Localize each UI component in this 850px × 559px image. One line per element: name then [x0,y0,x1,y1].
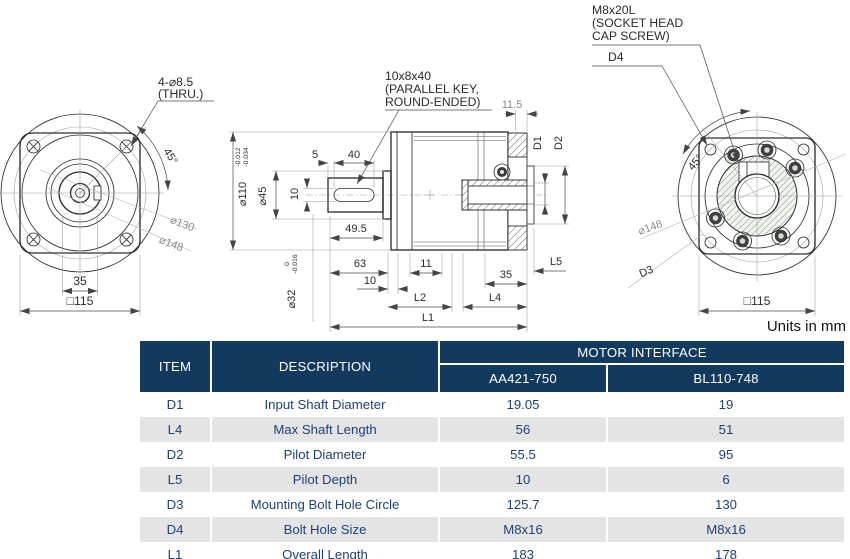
col-header-aa421-750: AA421-750 [438,365,606,392]
col-header-description: DESCRIPTION [210,341,438,392]
spec-table: ITEM DESCRIPTION MOTOR INTERFACE AA421-7… [140,341,844,559]
technical-drawing-page: ⌀130 ⌀148 45° 4-⌀8.5 (THRU.) 35 □115 [0,0,850,559]
rear-view: 45° ⌀148 D3 M8x20L (SOCKET HEAD CAP SCRE… [592,3,846,316]
cell-item: L1 [140,542,210,559]
section-dim-10: 10 [364,275,376,287]
section-input-sleeve [462,180,527,210]
section-pilot-boss [527,166,534,224]
cell-value-bl110: 19 [606,392,844,417]
section-dia45-label: ⌀45 [257,187,269,206]
table-row-l4: L4 Max Shaft Length 56 51 [140,417,844,442]
front-dia148-label: ⌀148 [157,234,185,254]
rear-screw-note-line2: (SOCKET HEAD [592,16,683,30]
cell-value-aa421: 10 [438,467,606,492]
cell-value-bl110: 130 [606,492,844,517]
section-dim-11-5: 11.5 [502,99,523,111]
cell-description: Pilot Depth [210,467,438,492]
section-dia110-label: ⌀110 [237,182,249,206]
cell-value-bl110: 51 [606,417,844,442]
section-dim-D1: D1 [532,136,544,150]
front-bolt-note-line2: (THRU.) [158,87,203,101]
col-header-bl110-748: BL110-748 [606,365,844,392]
cell-description: Pilot Diameter [210,442,438,467]
table-row-d4: D4 Bolt Hole Size M8x16 M8x16 [140,517,844,542]
cell-description: Input Shaft Diameter [210,392,438,417]
table-row-d1: D1 Input Shaft Diameter 19.05 19 [140,392,844,417]
section-view: 10x8x40 (PARALLEL KEY, ROUND-ENDED) 5 40… [229,69,569,332]
cell-value-bl110: 178 [606,542,844,559]
section-dim-key-width: 10 [289,188,301,200]
section-dia110-tol-lower: -0.034 [243,147,250,166]
section-dim-L1: L1 [422,312,434,324]
rear-dim-D4: D4 [608,50,624,64]
cell-description: Max Shaft Length [210,417,438,442]
rear-dim-D3: D3 [638,264,656,281]
rear-dim-square115: □115 [744,294,771,308]
table-row-d3: D3 Mounting Bolt Hole Circle 125.7 130 [140,492,844,517]
drawing-canvas: ⌀130 ⌀148 45° 4-⌀8.5 (THRU.) 35 □115 [0,0,850,340]
table-row-l1: L1 Overall Length 183 178 [140,542,844,559]
section-dim-L4: L4 [489,292,501,304]
front-angle-label: 45° [161,146,180,166]
cell-item: L5 [140,467,210,492]
front-dia130-label: ⌀130 [168,214,196,234]
col-header-item: ITEM [140,341,210,392]
section-dim-11: 11 [420,258,431,270]
section-key-note-line1: 10x8x40 [385,69,431,83]
front-dim-35: 35 [73,274,87,288]
rear-screw-note-line3: CAP SCREW) [592,29,670,43]
section-dim-L2: L2 [414,292,426,304]
cell-value-bl110: M8x16 [606,517,844,542]
cell-value-aa421: 19.05 [438,392,606,417]
section-key-note-line3: ROUND-ENDED) [385,95,480,109]
cell-value-aa421: 125.7 [438,492,606,517]
units-label: Units in mm [767,318,846,335]
cell-value-aa421: 56 [438,417,606,442]
cell-item: D1 [140,392,210,417]
cell-description: Bolt Hole Size [210,517,438,542]
section-dia32-tol-upper: 0 [284,262,291,266]
cell-value-aa421: 183 [438,542,606,559]
section-dia32-tol-lower: -0.016 [292,254,299,273]
section-dim-D2: D2 [553,136,565,150]
cell-value-aa421: 55.5 [438,442,606,467]
section-dia110-tol-upper: -0.012 [235,147,242,166]
cell-item: L4 [140,417,210,442]
cell-item: D4 [140,517,210,542]
section-dim-63: 63 [354,258,366,270]
col-header-motor-interface: MOTOR INTERFACE [438,341,844,365]
cell-value-bl110: 95 [606,442,844,467]
section-dim-35: 35 [500,269,512,281]
cell-value-aa421: M8x16 [438,517,606,542]
section-dim-49-5: 49.5 [345,223,366,235]
cell-description: Overall Length [210,542,438,559]
section-key-note-line2: (PARALLEL KEY, [385,82,479,96]
front-dim-square115: □115 [67,294,94,308]
cell-item: D3 [140,492,210,517]
cell-item: D2 [140,442,210,467]
table-row-d2: D2 Pilot Diameter 55.5 95 [140,442,844,467]
section-dim-5: 5 [312,149,318,161]
section-dia32-label: ⌀32 [286,290,298,309]
section-dim-40: 40 [348,149,360,161]
cell-description: Mounting Bolt Hole Circle [210,492,438,517]
cell-value-bl110: 6 [606,467,844,492]
front-view: ⌀130 ⌀148 45° 4-⌀8.5 (THRU.) 35 □115 [0,75,214,316]
section-dim-L5: L5 [550,256,562,268]
rear-screw-note-line1: M8x20L [592,3,636,17]
table-row-l5: L5 Pilot Depth 10 6 [140,467,844,492]
